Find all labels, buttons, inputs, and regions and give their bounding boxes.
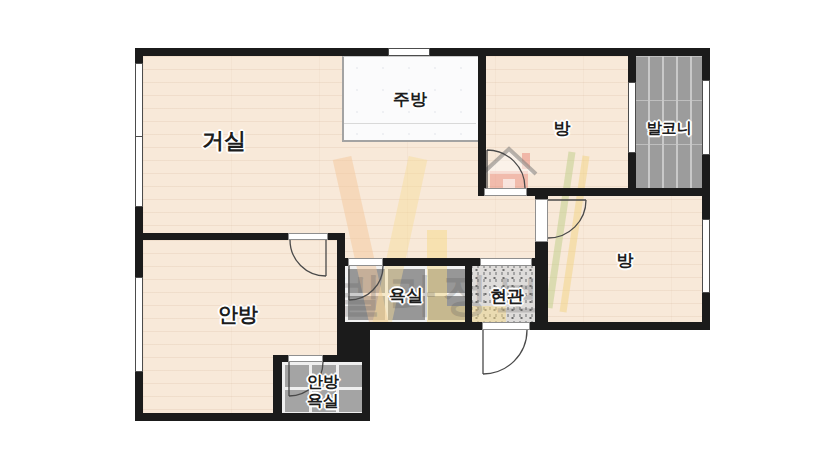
- door-arc-front-entrance: [483, 330, 527, 374]
- label-master-bedroom: 안방: [218, 301, 258, 328]
- label-living-room: 거실: [202, 126, 246, 156]
- label-balcony: 발코니: [647, 119, 692, 138]
- label-master-bathroom: 안방 욕실: [307, 372, 339, 410]
- label-master-bathroom-line1: 안방: [307, 372, 339, 391]
- label-kitchen: 주방: [393, 88, 427, 111]
- label-master-bathroom-line2: 욕실: [307, 391, 339, 410]
- door-arc-bathroom: [349, 266, 383, 300]
- door-arc-master-bedroom: [290, 240, 326, 276]
- door-swing-arcs: [0, 0, 840, 472]
- label-bathroom: 욕실: [389, 284, 423, 307]
- label-entrance: 현관: [490, 285, 524, 308]
- label-bedroom-top: 방: [554, 117, 571, 140]
- door-arc-bedroom-top: [487, 150, 525, 188]
- floor-plan-canvas: 빌라정보: [0, 0, 840, 472]
- label-bedroom-right: 방: [617, 249, 634, 272]
- door-arc-bedroom-right: [548, 200, 586, 238]
